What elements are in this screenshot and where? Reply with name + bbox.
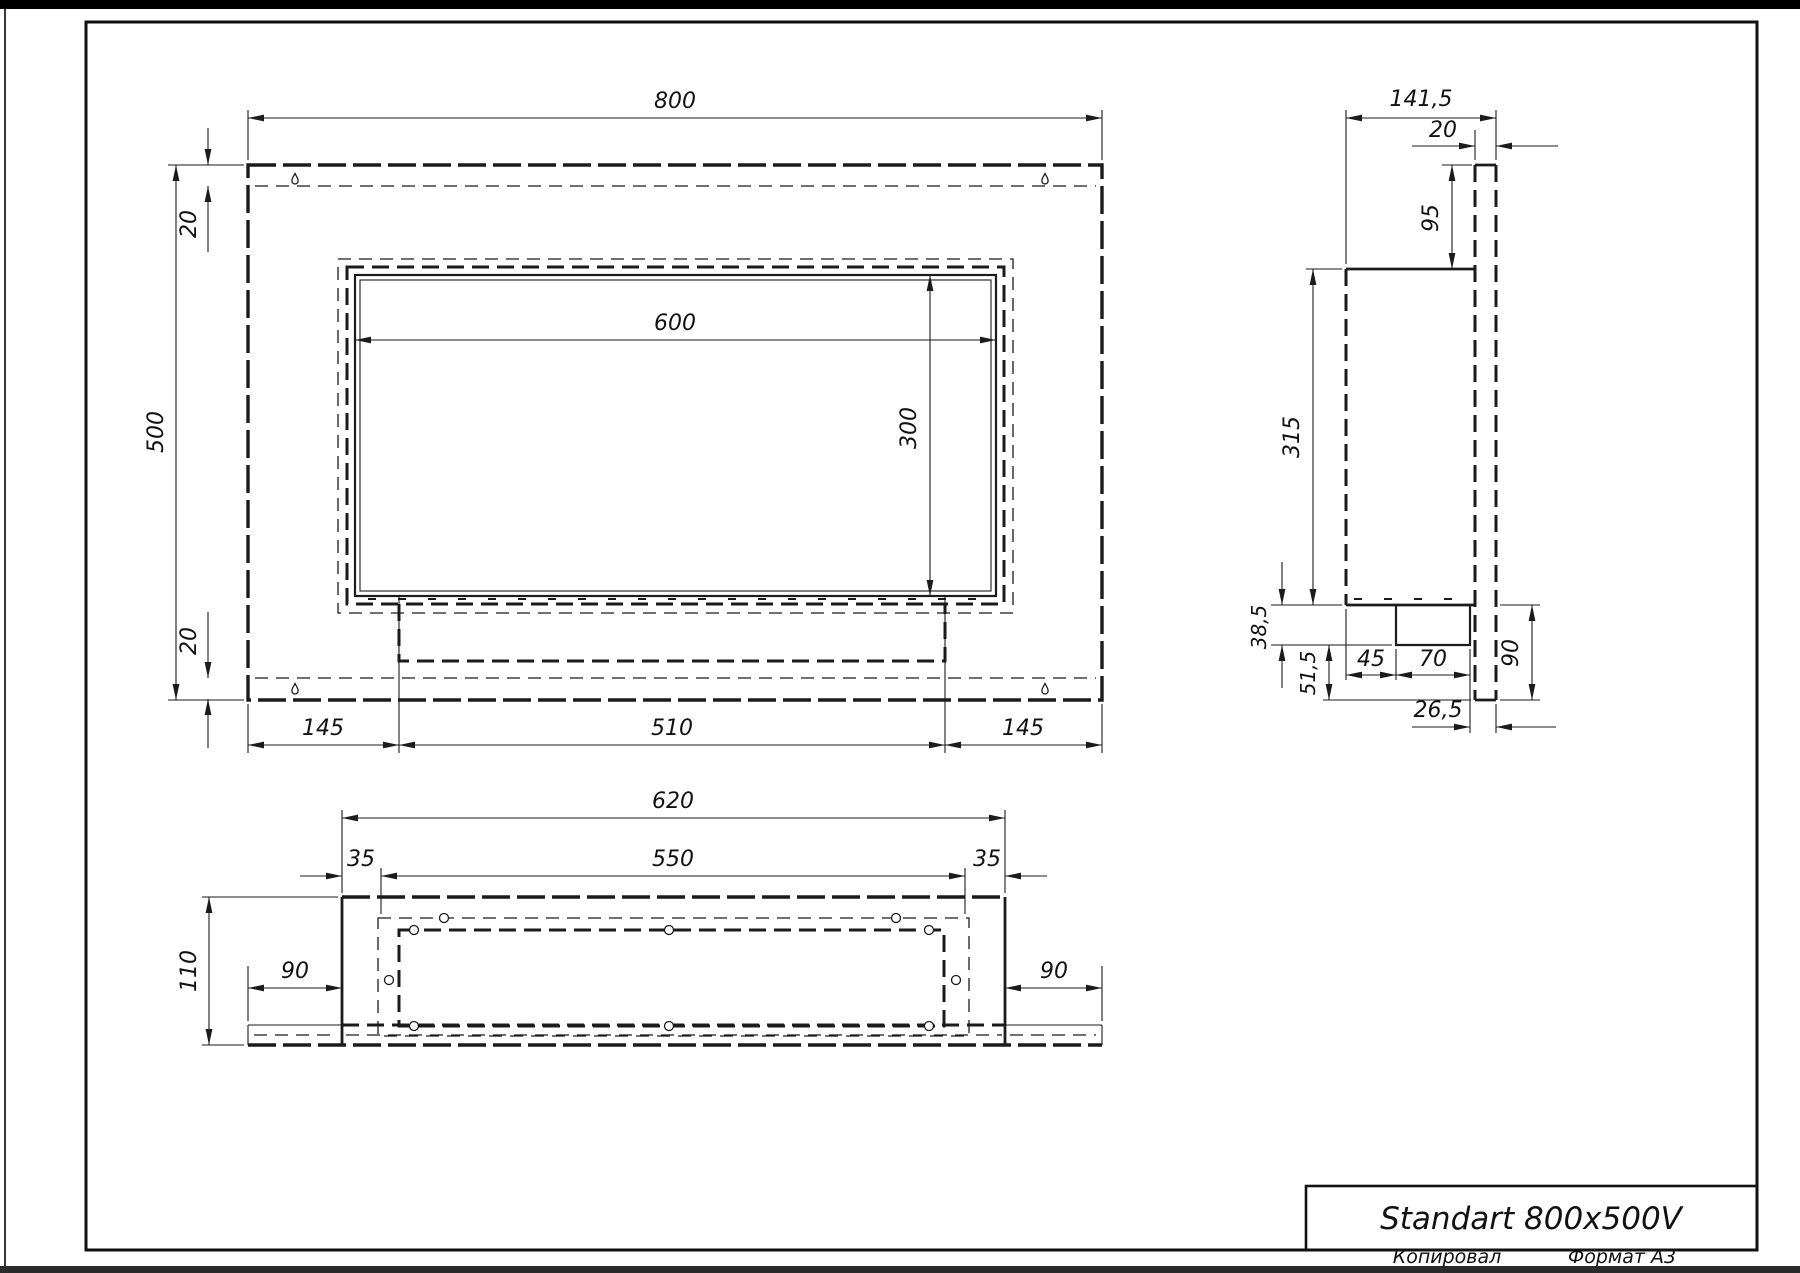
tray-outer-outline [378,918,969,1036]
sheet-edges [0,0,1800,1273]
keyhole-slot-icons [292,174,1048,695]
dim-front-bottom-offset: 20 [177,627,202,655]
side-view-dimensions: 141,5 20 95 315 38,5 51,5 [1247,87,1558,733]
front-view-dimensions: 800 500 20 20 600 300 14 [144,89,1102,753]
dim-body-height: 315 [1280,416,1305,458]
dim-opening-height: 300 [897,407,922,449]
drawing-title: Standart 800x500V [1380,1201,1685,1237]
bottom-view-dimensions: 620 550 35 35 110 90 90 [177,789,1102,1045]
technical-drawing-canvas: 800 500 20 20 600 300 14 [0,0,1800,1273]
front-panel-outline [248,165,1102,700]
dim-top-extension: 95 [1419,204,1444,232]
dim-front-left-margin: 145 [302,716,344,741]
bottom-view: 620 550 35 35 110 90 90 [177,789,1102,1045]
side-view: 141,5 20 95 315 38,5 51,5 [1247,87,1558,733]
dim-front-to-burner: 45 [1357,647,1385,672]
sheet-bottom-edge [0,1266,1800,1273]
drawing-frame [86,22,1757,1250]
burner-block-outline [1396,605,1470,645]
front-view: 800 500 20 20 600 300 14 [144,89,1102,753]
title-block: Standart 800x500V Копировал Формат А3 [1306,1186,1757,1268]
footer-format-label: Формат А3 [1568,1246,1676,1268]
dim-front-top-offset: 20 [177,210,202,238]
dim-opening-width: 600 [654,311,696,336]
dim-bottom-left-margin: 90 [281,959,309,984]
dim-side-depth: 141,5 [1390,87,1453,112]
dim-front-height: 500 [144,411,169,453]
dim-burner-depth: 70 [1419,647,1447,672]
dim-bottom-depth: 110 [177,950,202,992]
dim-lower-gap: 51,5 [1296,651,1320,696]
dim-panel-below-body: 90 [1499,639,1524,667]
dim-burner-to-panel: 26,5 [1414,698,1463,723]
dim-tray-width: 550 [652,847,694,872]
dim-flange-width: 620 [652,789,694,814]
dim-front-width: 800 [654,89,696,114]
dim-panel-thickness: 20 [1429,118,1457,143]
footer-copied-label: Копировал [1393,1246,1502,1268]
sheet-top-edge [0,0,1800,9]
dim-left-lip: 35 [347,847,375,872]
dim-burner-drop: 38,5 [1247,605,1271,650]
tray-inner-outline [399,930,944,1026]
dim-right-lip: 35 [973,847,1001,872]
dim-front-tray-width: 510 [651,716,693,741]
drawing-sheet: 800 500 20 20 600 300 14 [0,0,1800,1273]
dim-front-right-margin: 145 [1002,716,1044,741]
dim-bottom-right-margin: 90 [1040,959,1068,984]
